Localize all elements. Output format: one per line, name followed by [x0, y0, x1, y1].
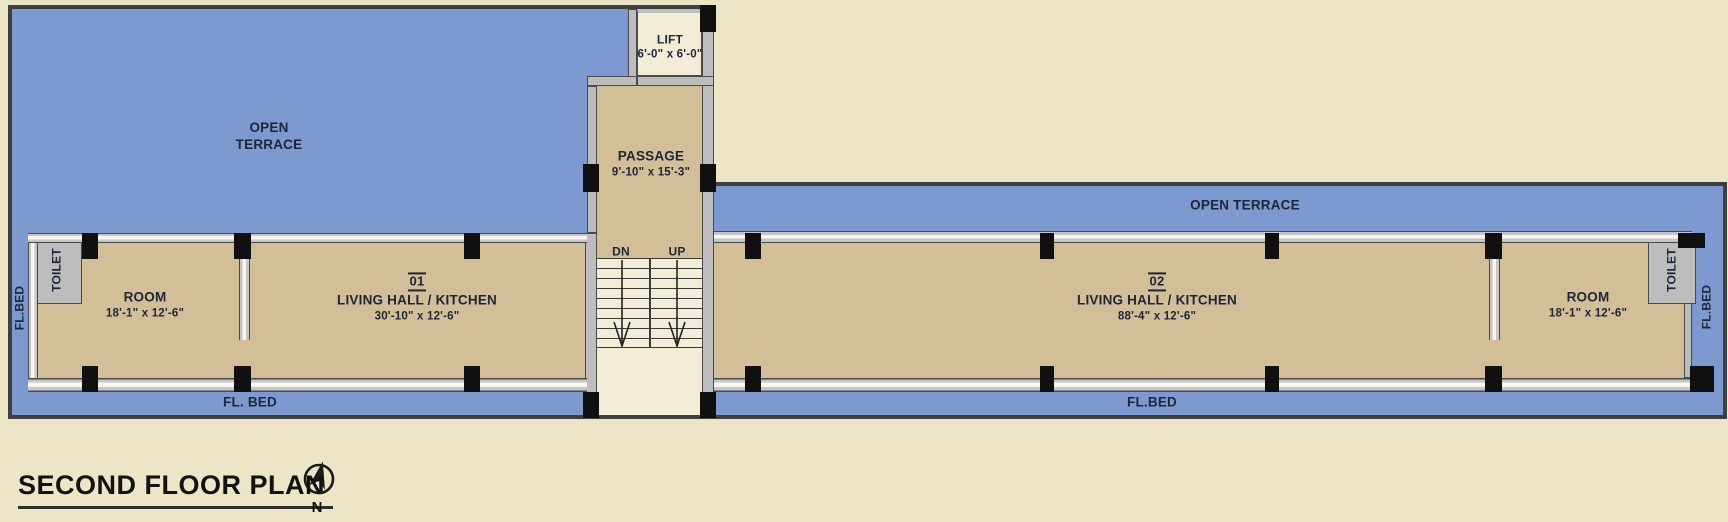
stairs-dn-label: DN: [612, 245, 630, 260]
open-terrace-left-line2: TERRACE: [236, 137, 303, 154]
pillar-passage-left: [583, 164, 599, 192]
unit-01-label: 01 LIVING HALL / KITCHEN 30'-10" x 12'-6…: [337, 272, 497, 323]
open-terrace-left-label: OPEN TERRACE: [236, 120, 303, 154]
pillar: [745, 233, 761, 259]
unit-02-label: 02 LIVING HALL / KITCHEN 88'-4" x 12'-6": [1077, 272, 1237, 323]
wall-top-left-band: [28, 233, 587, 243]
passage-dims: 9'-10" x 15'-3": [612, 165, 690, 179]
flbed-left-vertical-text: FL.BED: [13, 286, 28, 331]
wall-top-right-band: [714, 231, 1692, 243]
flbed-bottom-left-label: FL. BED: [223, 395, 277, 412]
north-label: N: [296, 499, 338, 516]
room-right-name: ROOM: [1567, 289, 1610, 306]
page-title: SECOND FLOOR PLAN: [18, 470, 333, 509]
toilet-right-label: TOILET: [1665, 248, 1680, 292]
plan-border-top-right: [714, 182, 1727, 186]
unit-02-dims: 88'-4" x 12'-6": [1118, 309, 1196, 323]
unit-01-dims: 30'-10" x 12'-6": [375, 309, 460, 323]
stair-landing: [597, 348, 702, 415]
wall-left-outer: [28, 243, 38, 378]
pillar: [745, 366, 761, 392]
passage-label: PASSAGE 9'-10" x 15'-3": [612, 148, 690, 179]
flbed-bottom-right-strip: [714, 392, 1692, 415]
plan-border-bottom: [8, 415, 1727, 419]
pillar-lift-corner: [700, 5, 716, 32]
pillar: [1678, 233, 1705, 248]
wall-lift-left: [628, 9, 637, 82]
pillar: [464, 233, 480, 259]
room-left-label: ROOM 18'-1" x 12'-6": [106, 289, 184, 320]
flbed-right-vertical-text: FL.BED: [1700, 285, 1715, 330]
flbed-left-vertical-label: FL.BED: [13, 286, 28, 331]
stairs-up-label: UP: [668, 245, 685, 260]
unit-02-number: 02: [1148, 272, 1167, 291]
lift-name: LIFT: [657, 32, 683, 47]
pillar: [1265, 366, 1279, 392]
pillar: [1690, 366, 1714, 392]
room-left-dims: 18'-1" x 12'-6": [106, 306, 184, 320]
open-terrace-right-label: OPEN TERRACE: [1190, 198, 1300, 215]
plan-border-left: [8, 5, 12, 419]
flbed-bottom-left-text: FL. BED: [223, 395, 277, 412]
wall-lift-bottom: [637, 76, 714, 86]
stair-flight-divider: [649, 258, 651, 347]
stairs-down-arrow: [612, 260, 632, 350]
unit-01-number: 01: [408, 272, 427, 291]
pillar: [464, 366, 480, 392]
open-terrace-left-line1: OPEN: [249, 120, 288, 137]
pillar: [1485, 366, 1502, 392]
room-left-name: ROOM: [124, 289, 167, 306]
lift-label: LIFT 6'-0" x 6'-0": [637, 32, 702, 61]
stairs-up-arrow: [667, 260, 687, 350]
pillar-staircol-bottom-right: [700, 392, 716, 418]
toilet-left-label: TOILET: [50, 248, 65, 292]
pillar: [82, 233, 98, 259]
pillar-passage-right: [700, 164, 716, 192]
stairs-dn-text: DN: [612, 245, 630, 260]
wall-terrace-notch-bottom: [587, 76, 637, 86]
wall-bottom-left-band: [28, 378, 587, 392]
plan-border-right: [1723, 182, 1727, 419]
unit-01-name: LIVING HALL / KITCHEN: [337, 292, 497, 309]
stairs-up-text: UP: [668, 245, 685, 260]
pillar: [1485, 233, 1502, 259]
open-terrace-left-notch: [587, 9, 630, 80]
passage-name: PASSAGE: [618, 148, 684, 165]
pillar: [234, 366, 251, 392]
wall-passage-left: [587, 86, 597, 233]
pillar: [1265, 233, 1279, 259]
floor-plan-canvas: OPEN TERRACE OPEN TERRACE LIFT 6'-0" x 6…: [0, 0, 1728, 522]
wall-bottom-right-band: [714, 378, 1692, 392]
wall-staircol-right: [702, 9, 714, 418]
lift-dims: 6'-0" x 6'-0": [637, 47, 702, 61]
room-right-dims: 18'-1" x 12'-6": [1549, 306, 1627, 320]
flbed-bottom-right-label: FL.BED: [1127, 395, 1177, 412]
pillar: [82, 366, 98, 392]
pillar-staircol-bottom-left: [583, 392, 599, 418]
room-right-label: ROOM 18'-1" x 12'-6": [1549, 289, 1627, 320]
flbed-bottom-right-text: FL.BED: [1127, 395, 1177, 412]
plan-border-top-left: [8, 5, 716, 9]
pillar: [234, 233, 251, 259]
unit-02-name: LIVING HALL / KITCHEN: [1077, 292, 1237, 309]
flbed-bottom-left-strip: [28, 392, 587, 415]
open-terrace-right-text: OPEN TERRACE: [1190, 198, 1300, 215]
pillar: [1040, 366, 1054, 392]
flbed-right-vertical-label: FL.BED: [1700, 285, 1715, 330]
pillar: [1040, 233, 1054, 259]
toilet-left-text: TOILET: [50, 248, 65, 292]
toilet-right-text: TOILET: [1665, 248, 1680, 292]
